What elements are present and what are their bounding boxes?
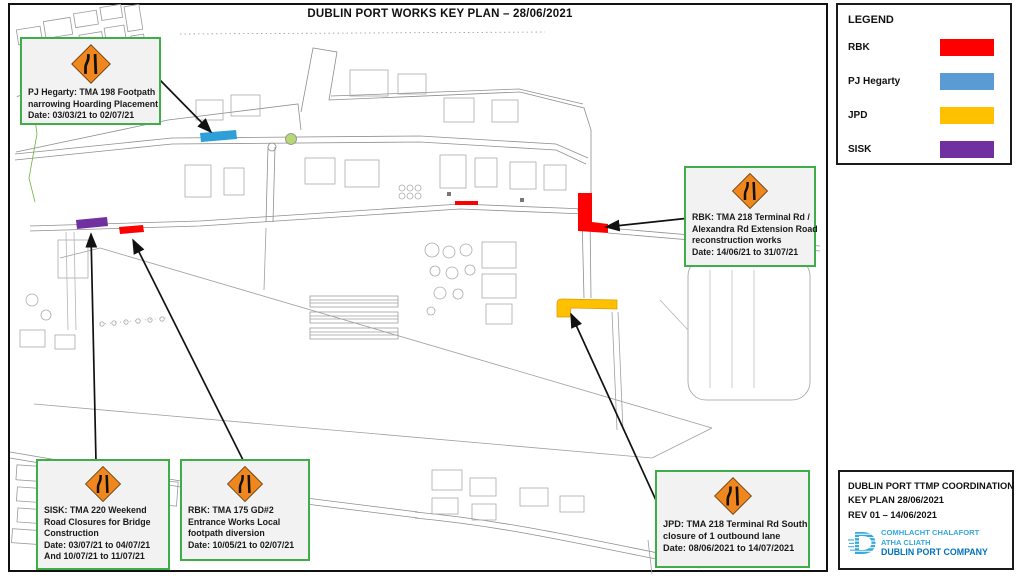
callout-line: Date: 10/05/21 to 02/07/21 (188, 540, 304, 552)
road-narrows-icon (730, 171, 770, 211)
legend-item-pj-hegarty: PJ Hegarty (848, 73, 1000, 90)
legend-item-sisk: SISK (848, 141, 1000, 158)
legend-label: RBK (848, 42, 870, 53)
legend-item-jpd: JPD (848, 107, 1000, 124)
callout-line: footpath diversion (188, 528, 304, 540)
dublin-port-key-plan: DUBLIN PORT WORKS KEY PLAN – 28/06/2021 … (0, 0, 1024, 576)
callout-sisk-tma-220: SISK: TMA 220 Weekend Road Closures for … (36, 459, 170, 570)
callout-pj-hegarty-tma-198: PJ Hegarty: TMA 198 Footpath narrowing H… (20, 37, 161, 125)
legend-item-rbk: RBK (848, 39, 1000, 56)
callout-line: RBK: TMA 218 Terminal Rd / (692, 212, 810, 224)
callout-line: PJ Hegarty: TMA 198 Footpath (28, 87, 155, 99)
dublin-port-company-logo: COMHLACHT CHALAFORT ATHA CLIATH DUBLIN P… (848, 528, 1004, 558)
title-block-panel: DUBLIN PORT TTMP COORDINATION KEY PLAN 2… (838, 470, 1014, 570)
callout-line: Date: 03/03/21 to 02/07/21 (28, 110, 155, 122)
callout-line: reconstruction works (692, 235, 810, 247)
logo-irish-line2: ATHA CLIATH (881, 538, 988, 547)
callout-line: And 10/07/21 to 11/07/21 (44, 551, 164, 563)
callout-line: Construction (44, 528, 164, 540)
callout-rbk-tma-218: RBK: TMA 218 Terminal Rd / Alexandra Rd … (684, 166, 816, 267)
legend-label: JPD (848, 110, 867, 121)
callout-line: Date: 08/06/2021 to 14/07/2021 (663, 542, 804, 554)
callout-line: Date: 03/07/21 to 04/07/21 (44, 540, 164, 552)
legend-swatch-rbk (940, 39, 994, 56)
callout-line: Entrance Works Local (188, 517, 304, 529)
callout-rbk-tma-175: RBK: TMA 175 GD#2 Entrance Works Local f… (180, 459, 310, 561)
road-narrows-icon (225, 464, 265, 504)
callout-line: SISK: TMA 220 Weekend (44, 505, 164, 517)
legend-label: PJ Hegarty (848, 76, 900, 87)
road-narrows-icon (69, 42, 113, 86)
callout-line: closure of 1 outbound lane (663, 530, 804, 542)
logo-english-line: DUBLIN PORT COMPANY (881, 547, 988, 558)
callout-line: Road Closures for Bridge (44, 517, 164, 529)
road-narrows-icon (83, 464, 123, 504)
dublin-port-logo-icon (848, 528, 878, 558)
title-block-line2: KEY PLAN 28/06/2021 (848, 493, 1004, 507)
legend-heading: LEGEND (848, 14, 1000, 26)
callout-jpd-tma-218: JPD: TMA 218 Terminal Rd South closure o… (655, 470, 810, 568)
callout-line: JPD: TMA 218 Terminal Rd South (663, 518, 804, 530)
legend-swatch-jpd (940, 107, 994, 124)
legend-swatch-pj-hegarty (940, 73, 994, 90)
callout-line: narrowing Hoarding Placement (28, 99, 155, 111)
workzone-rbk-small (455, 201, 478, 205)
title-block-line3: REV 01 – 14/06/2021 (848, 508, 1004, 522)
legend-panel: LEGEND RBK PJ Hegarty JPD SISK (836, 3, 1012, 165)
callout-line: Alexandra Rd Extension Road (692, 224, 810, 236)
road-narrows-icon (712, 475, 754, 517)
page-title: DUBLIN PORT WORKS KEY PLAN – 28/06/2021 (240, 8, 640, 20)
logo-irish-line1: COMHLACHT CHALAFORT (881, 528, 988, 537)
legend-swatch-sisk (940, 141, 994, 158)
callout-line: RBK: TMA 175 GD#2 (188, 505, 304, 517)
legend-label: SISK (848, 144, 871, 155)
roundabout-marker (286, 134, 297, 145)
title-block-line1: DUBLIN PORT TTMP COORDINATION (848, 479, 1004, 493)
callout-line: Date: 14/06/21 to 31/07/21 (692, 247, 810, 259)
